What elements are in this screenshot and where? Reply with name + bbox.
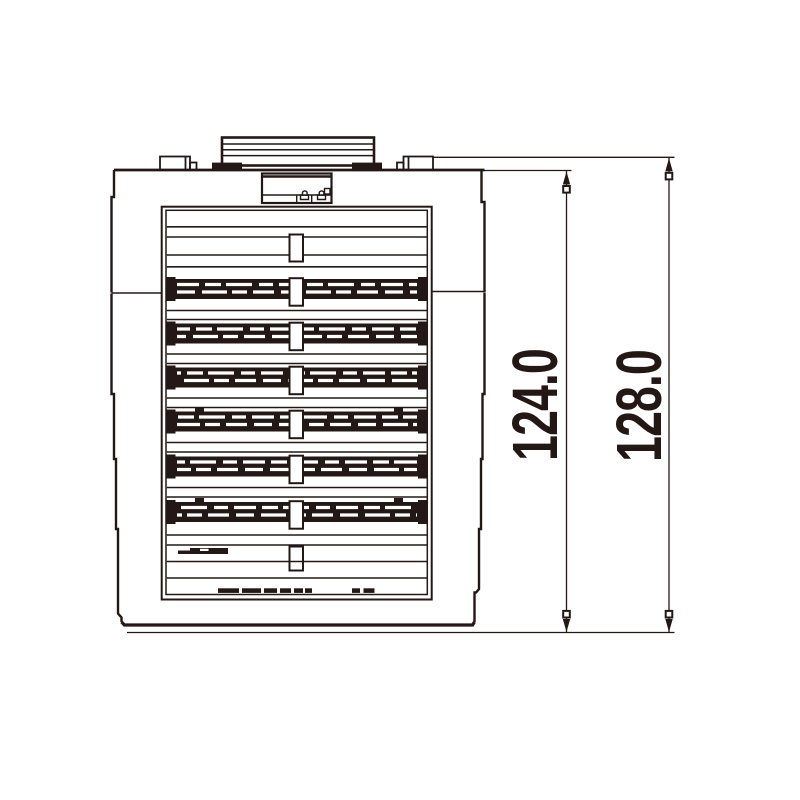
body-right-edge	[475, 170, 485, 622]
band-center-clip	[290, 456, 304, 484]
bottom-dash	[242, 588, 261, 593]
bottom-dash	[294, 588, 303, 593]
bottom-dash	[280, 588, 291, 593]
bottom-left-tab-notch	[200, 549, 209, 551]
dim-arrow-down-icon	[563, 619, 570, 632]
dim-arrow-base	[563, 186, 570, 193]
vent-band-cap-left	[166, 455, 176, 479]
body-left-edge	[112, 170, 122, 622]
bottom-dash	[264, 588, 277, 593]
vent-band-cap-right	[418, 277, 428, 301]
dim-arrow-up-icon	[665, 158, 672, 171]
vent-bump	[195, 498, 204, 502]
center-clip-top	[290, 235, 304, 262]
dimension-label-overall-height: 128.0	[603, 350, 675, 462]
louver-rows	[166, 227, 428, 593]
dim-arrow-base	[563, 611, 570, 618]
band-center-clip	[290, 501, 304, 529]
vent-band-cap-left	[166, 322, 176, 346]
panel-inner-border	[166, 210, 427, 594]
center-clip-bottom	[290, 547, 304, 571]
vent-bump	[195, 408, 204, 412]
vent-band-cap-right	[418, 410, 428, 434]
dim-arrow-base	[666, 611, 673, 618]
band-center-clip	[290, 411, 304, 439]
dimension-body-height: 124.0	[499, 171, 571, 633]
bottom-dash	[305, 588, 312, 593]
bottom-dash	[218, 588, 239, 593]
vent-band-cap-left	[166, 366, 176, 390]
cover-foot-left	[212, 163, 242, 170]
dimension-overall-height: 128.0	[603, 158, 675, 633]
panel-outer-border	[162, 207, 432, 600]
dimension-set: 124.0 128.0	[432, 157, 675, 632]
dim-arrow-down-icon	[665, 619, 672, 632]
bottom-dash	[364, 588, 375, 593]
top-cover-block	[212, 138, 382, 170]
connector-key	[325, 189, 331, 195]
vent-band-cap-right	[418, 322, 428, 346]
band-center-clip	[290, 278, 304, 306]
dim-arrow-up-icon	[563, 172, 570, 185]
drawing-page: 124.0 128.0	[0, 0, 800, 800]
vent-band-cap-left	[166, 277, 176, 301]
cover-foot-right	[352, 163, 382, 170]
dimension-label-body-height: 124.0	[499, 349, 571, 461]
vent-band-cap-right	[418, 455, 428, 479]
band-center-clip	[290, 323, 304, 351]
vent-band-cap-right	[418, 500, 428, 524]
louver-panel	[162, 207, 432, 600]
connector-screw	[319, 191, 324, 195]
vent-band-cap-right	[418, 366, 428, 390]
vent-band-cap-left	[166, 500, 176, 524]
vent-band-cap-left	[166, 410, 176, 434]
side-tab-right	[397, 157, 433, 171]
cover-outline	[222, 138, 374, 166]
technical-drawing-canvas: 124.0 128.0	[0, 0, 800, 800]
dim-arrow-base	[666, 173, 673, 180]
body-bottom-lip	[122, 622, 475, 625]
bottom-dash	[352, 588, 360, 593]
connector-block	[262, 174, 332, 204]
side-tab-left	[160, 157, 197, 171]
connector-screw	[303, 191, 308, 195]
band-center-clip	[290, 367, 304, 395]
vent-bump	[394, 498, 403, 502]
vent-bump	[394, 408, 403, 412]
